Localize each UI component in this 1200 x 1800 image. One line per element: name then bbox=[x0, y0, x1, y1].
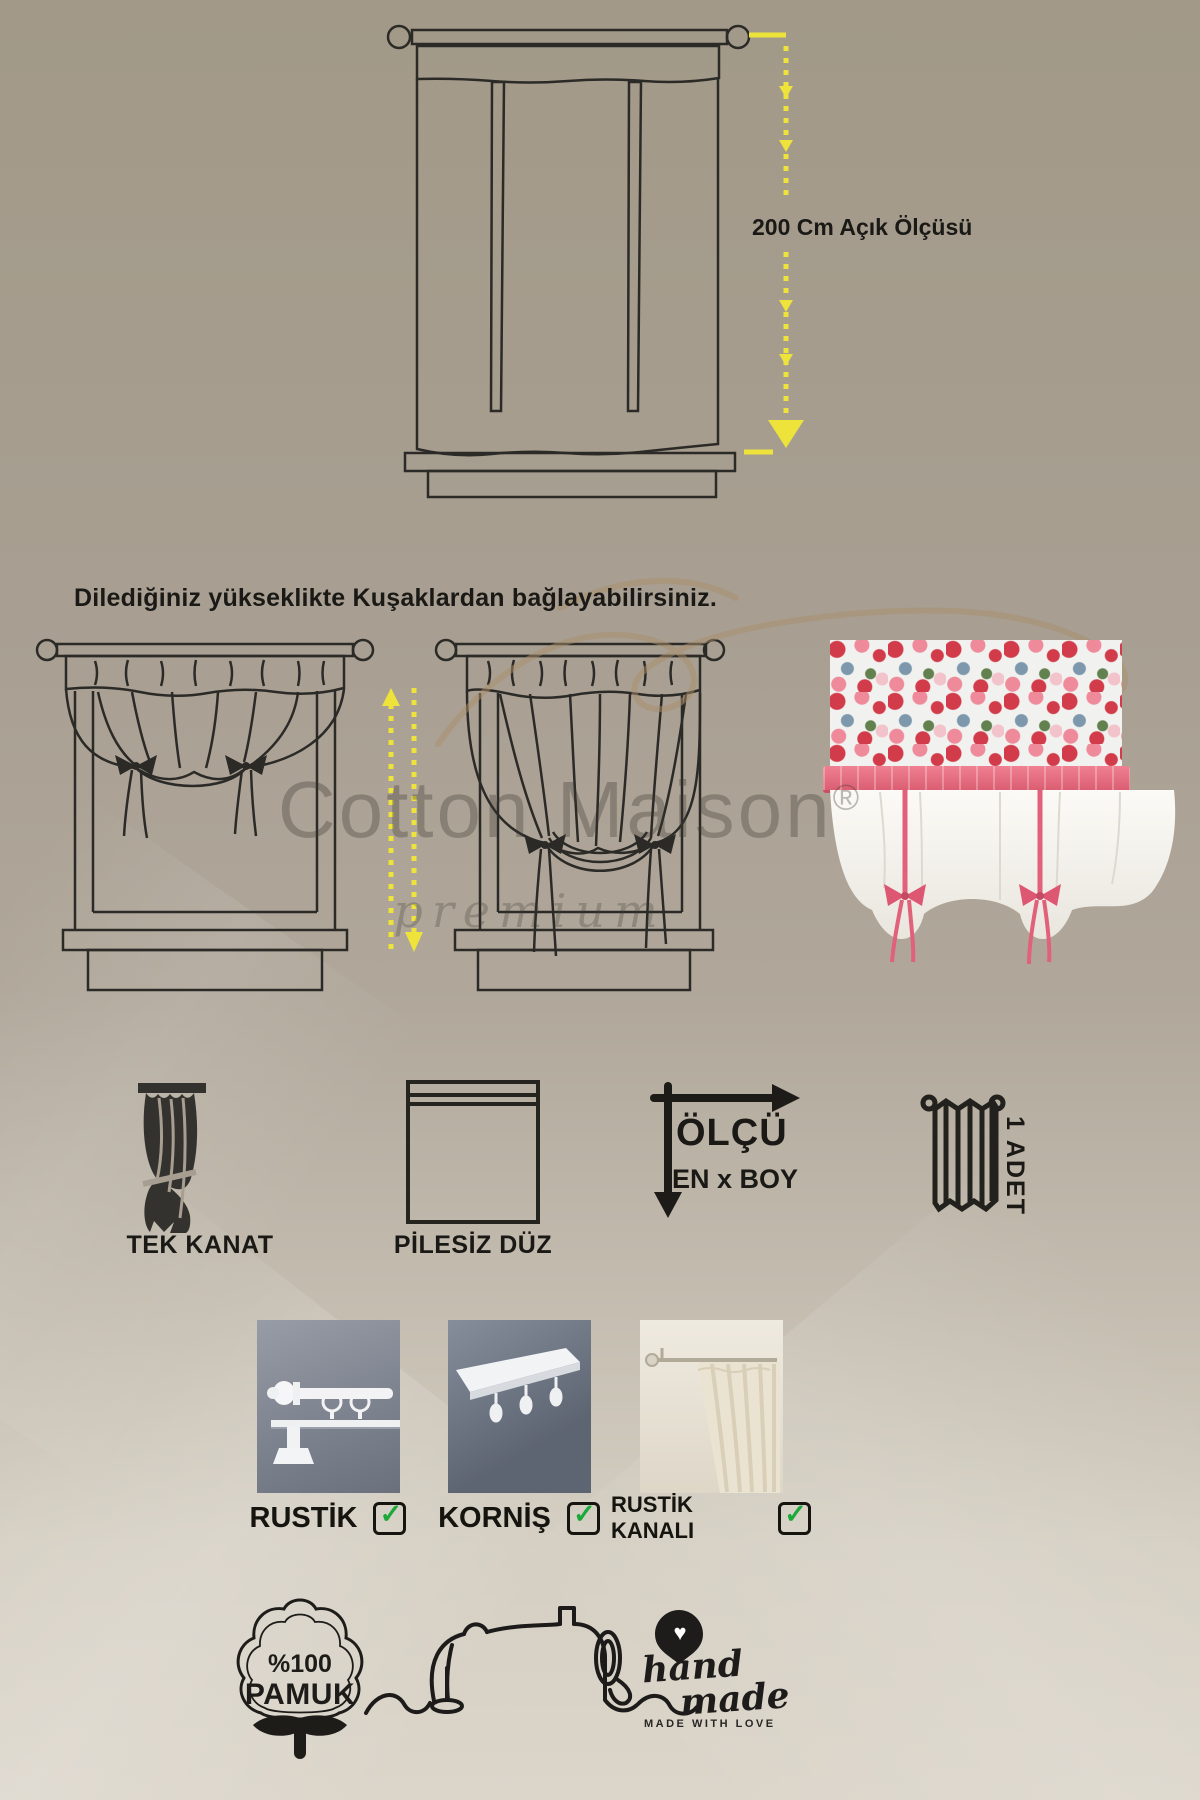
cotton-percent-label: %100 bbox=[250, 1650, 350, 1679]
feature-label-1-adet: 1 ADET bbox=[1000, 1116, 1029, 1216]
kornis-label: KORNİŞ bbox=[438, 1502, 551, 1535]
rustik-checkbox: ✓ bbox=[373, 1502, 406, 1535]
rustik-kanali-photo bbox=[640, 1320, 783, 1493]
height-measure-arrow bbox=[744, 35, 804, 452]
product-infographic: 200 Cm Açık Ölçüsü Dilediğiniz yükseklik… bbox=[0, 0, 1200, 1800]
kornis-rail-photo bbox=[448, 1320, 591, 1493]
kornis-rail-art bbox=[448, 1320, 590, 1493]
check-icon: ✓ bbox=[784, 1501, 807, 1528]
mount-option-rustik-kanali: RUSTİK KANALI ✓ bbox=[611, 1500, 811, 1536]
headline: Dilediğiniz yükseklikte Kuşaklardan bağl… bbox=[74, 584, 717, 613]
feature-label-olcu: ÖLÇÜ bbox=[676, 1112, 788, 1155]
registered-mark: ® bbox=[833, 776, 863, 817]
heart-icon: ♥ bbox=[667, 1620, 693, 1646]
mount-option-kornis: KORNİŞ ✓ bbox=[419, 1500, 619, 1536]
rustik-rod-photo bbox=[257, 1320, 400, 1493]
brand-watermark: Cotton Maison® bbox=[180, 764, 960, 856]
brand-watermark-text: Cotton Maison bbox=[278, 765, 833, 854]
handmade-word2: made bbox=[679, 1674, 791, 1724]
open-measure-label: 200 Cm Açık Ölçüsü bbox=[752, 214, 972, 241]
feature-label-tek-kanat: TEK KANAT bbox=[100, 1231, 300, 1260]
check-icon: ✓ bbox=[380, 1501, 403, 1528]
handmade-tagline: MADE WITH LOVE bbox=[644, 1718, 776, 1730]
rustik-rod-art bbox=[257, 1320, 400, 1493]
floral-valance bbox=[830, 640, 1122, 770]
rustik-kanali-checkbox: ✓ bbox=[778, 1502, 811, 1535]
rustik-kanali-label: RUSTİK KANALI bbox=[611, 1492, 768, 1544]
check-icon: ✓ bbox=[573, 1501, 596, 1528]
open-curtain-drawing bbox=[388, 26, 749, 497]
accordion-curtain-icon bbox=[923, 1097, 1003, 1209]
flat-no-pleat-icon bbox=[408, 1082, 538, 1222]
feature-label-pilesiz-duz: PİLESİZ DÜZ bbox=[373, 1231, 573, 1260]
kornis-checkbox: ✓ bbox=[567, 1502, 600, 1535]
cotton-pamuk-label: PAMUK bbox=[240, 1678, 360, 1712]
feature-label-en-x-boy: EN x BOY bbox=[672, 1164, 798, 1195]
single-panel-curtain-icon bbox=[138, 1083, 206, 1233]
premium-watermark: premium bbox=[340, 884, 720, 938]
mount-option-rustik: RUSTİK ✓ bbox=[228, 1500, 428, 1536]
rustik-kanali-art bbox=[640, 1320, 783, 1493]
rustik-label: RUSTİK bbox=[250, 1502, 358, 1535]
